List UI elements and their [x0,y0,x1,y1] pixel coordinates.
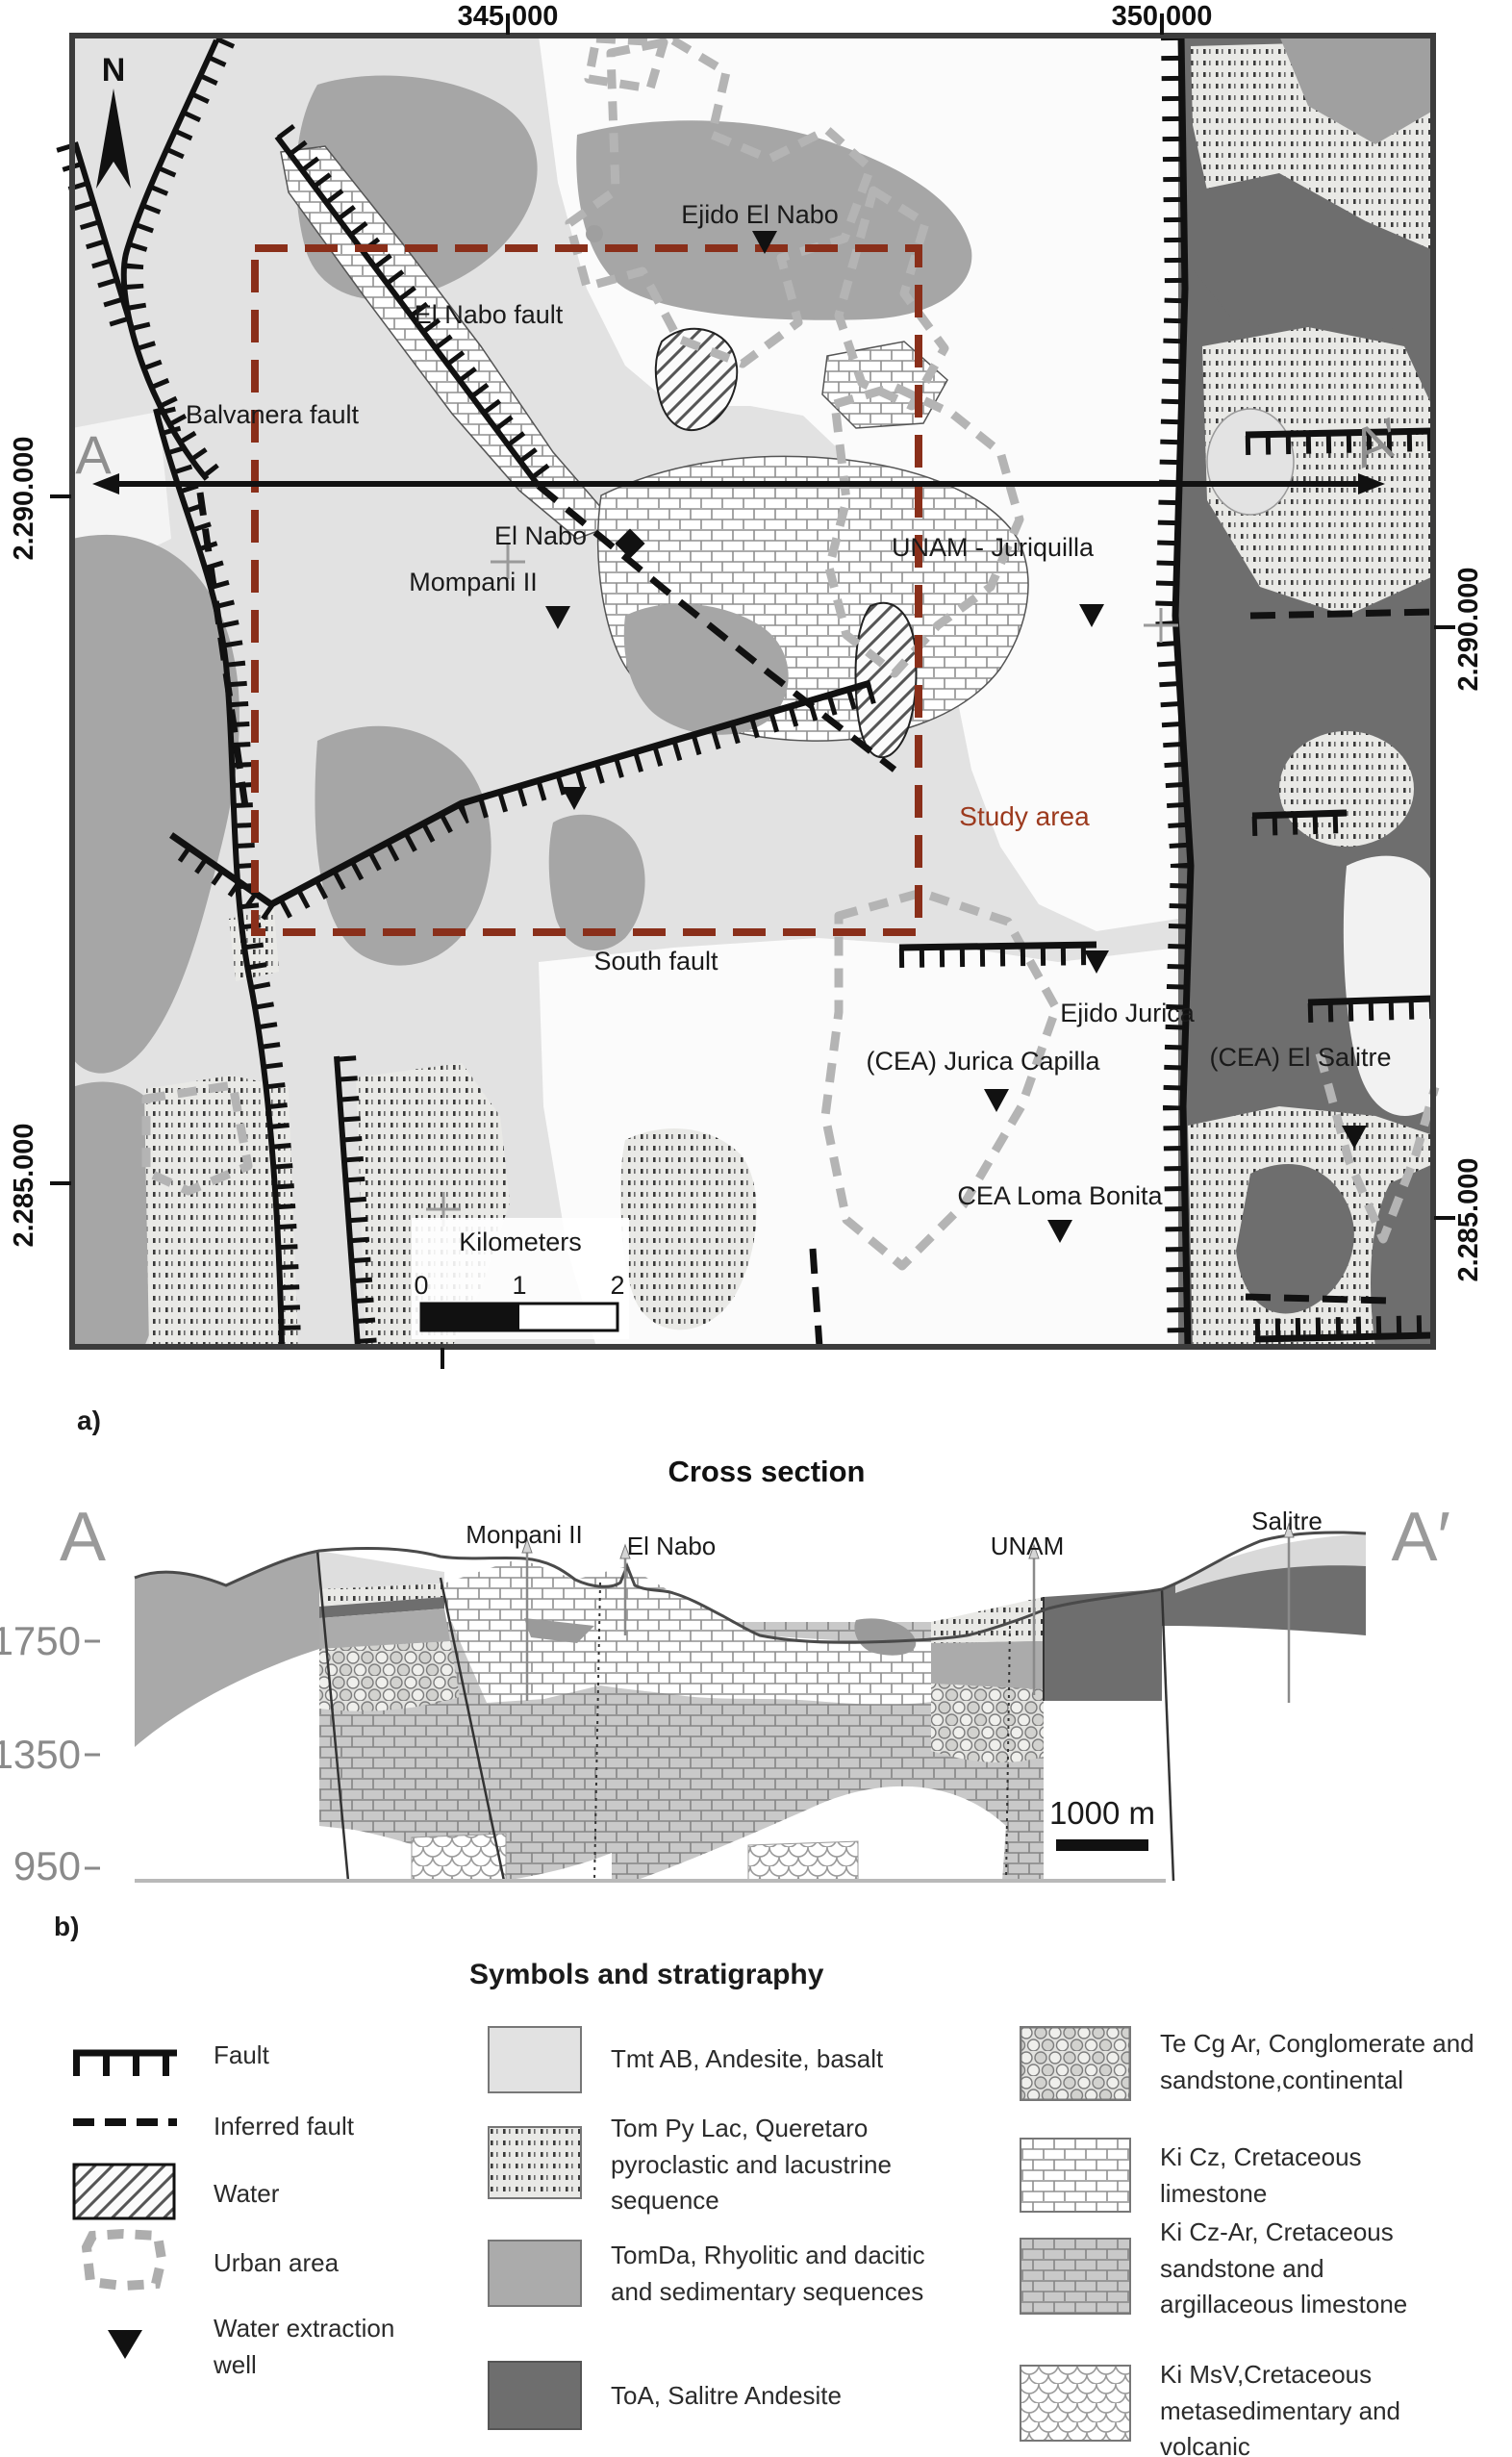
xs-conglomerate-layer [319,1641,460,1711]
map-dot [586,225,603,242]
swatch-te-cg-ar [1020,2026,1131,2101]
place-label: El Nabo [494,521,587,550]
xs-metased-patch [748,1841,858,1881]
legend-unit-label: Ki Cz-Ar, Cretaceous sandstone and argil… [1160,2215,1458,2323]
map-scale-bar: Kilometers 0 1 2 [412,1218,629,1339]
elevation-ticks [85,1641,100,1868]
tmt-blob [1207,409,1294,515]
north-label: N [102,52,126,89]
place-label: UNAM - Juriquilla [892,533,1095,562]
xs-scale-bar [1056,1839,1148,1851]
xs-pyroclastic-layer [931,1597,1044,1643]
swatch-ki-msv [1020,2365,1131,2442]
axis-tick-label: 2.290.000 [1453,567,1484,691]
inferred-fault-symbol-icon [69,2113,181,2134]
pyroclastic-patch [1279,731,1414,847]
water-symbol-icon [72,2163,178,2222]
xs-well-label: Salitre [1251,1507,1323,1535]
legend-symbol-label: Urban area [214,2245,339,2282]
xs-scale-label: 1000 m [1049,1795,1155,1831]
swatch-tomda [488,2240,582,2307]
legend-unit-label: ToA, Salitre Andesite [611,2378,909,2415]
xs-well-label: UNAM [991,1532,1065,1560]
swatch-ki-cz-ar [1020,2238,1131,2315]
fault-label: South fault [593,947,718,975]
scale-title: Kilometers [459,1228,582,1256]
axis-tick-label: 350.000 [1112,1,1213,32]
swatch-tom-py-lac [488,2126,582,2199]
legend-title: Symbols and stratigraphy [469,1959,823,1991]
panel-a-tag: a) [77,1406,101,1435]
place-label: Ejido El Nabo [681,200,839,229]
legend-unit-label: Tmt AB, Andesite, basalt [611,2041,909,2078]
place-label: (CEA) El Salitre [1209,1043,1391,1072]
elevation-label: 950 [13,1843,81,1888]
elevation-label: 1350 [0,1732,81,1777]
xs-endpoint-a: A [60,1499,106,1576]
place-label: (CEA) Jurica Capilla [866,1047,1100,1076]
xs-endpoint-a-prime: A′ [1391,1499,1450,1576]
axis-tick-label: 2.290.000 [9,436,39,560]
elevation-label: 1750 [0,1618,81,1663]
study-area-label: Study area [959,801,1090,831]
axis-tick-label: 345.000 [458,1,559,32]
map-panel: N Kilometers 0 1 2 345.000 350.000 2.290… [0,0,1512,1440]
scale-tick: 0 [414,1271,428,1300]
legend-symbol-label: Water extraction well [214,2311,435,2383]
swatch-toa [488,2361,582,2430]
fault-symbol-icon [67,2041,183,2099]
axis-tick-label: 2.285.000 [9,1123,39,1247]
xs-metased-patch [412,1834,506,1881]
legend-symbol-label: Water [214,2176,279,2213]
xs-well-label: Monpani II [466,1520,582,1549]
place-label: Ejido Jurica [1060,999,1196,1027]
legend-unit-label: Te Cg Ar, Conglomerate and sandstone,con… [1160,2026,1487,2098]
legend-unit-label: Ki Cz, Cretaceous limestone [1160,2140,1410,2212]
section-endpoint-a: A [75,424,112,485]
legend-unit-label: Tom Py Lac, Queretaro pyroclastic and la… [611,2111,904,2219]
axis-tick-label: 2.285.000 [1453,1157,1484,1281]
fault-label: El Nabo fault [415,300,564,329]
cross-section-title: Cross section [668,1455,865,1488]
scale-tick: 2 [610,1271,624,1300]
xs-tmt-layer [319,1551,444,1589]
legend-symbol-label: Fault [214,2038,269,2074]
water-extraction-well-symbol-icon [106,2328,144,2361]
place-label: Mompani II [409,568,538,596]
scale-tick: 1 [512,1271,526,1300]
place-label: CEA Loma Bonita [957,1181,1163,1210]
xs-conglomerate-layer [931,1684,1044,1762]
xs-tomda-hill [135,1551,319,1747]
xs-tomda-layer [931,1641,1044,1689]
cross-section-panel: Cross section A A′ Monpani II El Nabo UN… [0,1440,1512,1979]
legend-unit-label: TomDa, Rhyolitic and dacitic and sedimen… [611,2238,928,2310]
swatch-tmt-ab [488,2026,582,2093]
legend-unit-label: Ki MsV,Cretaceous metasedimentary and vo… [1160,2357,1420,2457]
xs-well-label: El Nabo [627,1532,717,1560]
panel-b-tag: b) [54,1912,79,1941]
figure-geologic-map: N Kilometers 0 1 2 345.000 350.000 2.290… [0,0,1512,2457]
swatch-ki-cz [1020,2138,1131,2213]
urban-area-symbol-icon [73,2224,175,2295]
fault-label: Balvanera fault [186,400,360,429]
legend-symbol-label: Inferred fault [214,2109,354,2145]
